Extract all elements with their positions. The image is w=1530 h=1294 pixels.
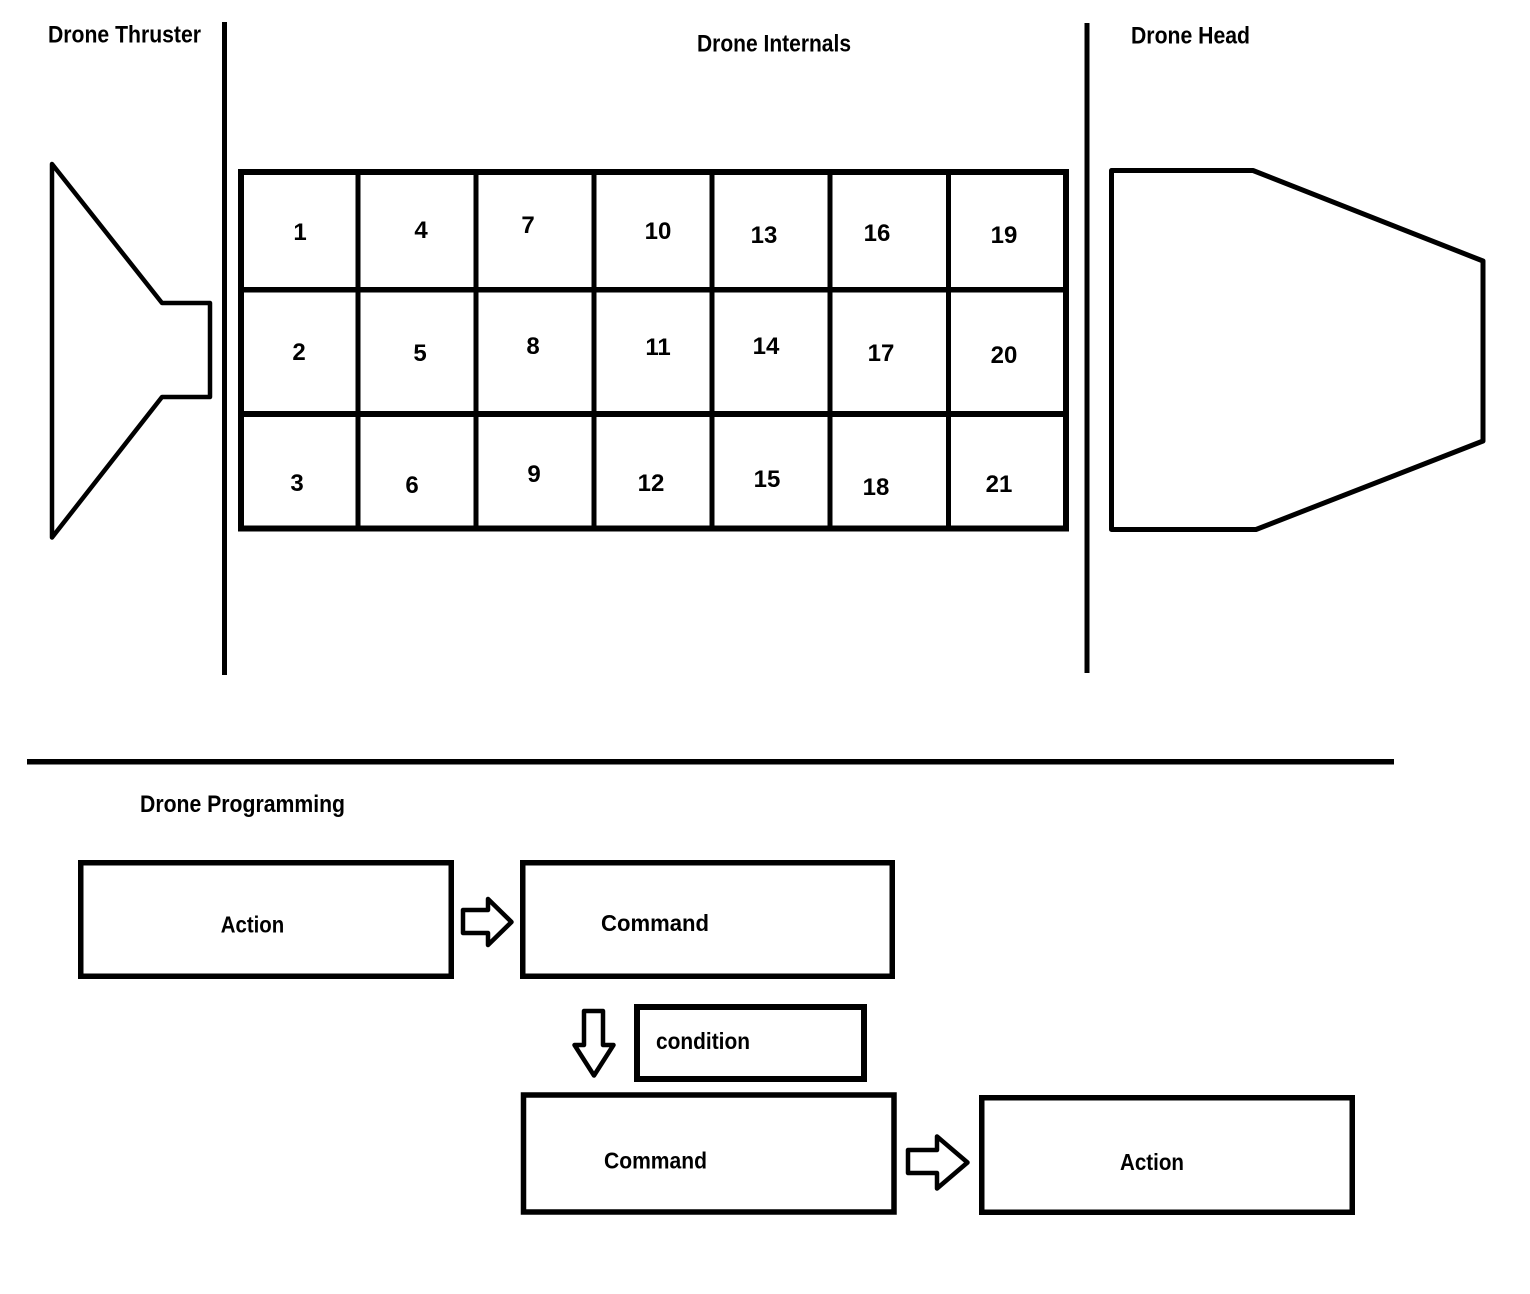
svg-text:13: 13 — [751, 222, 778, 249]
svg-text:Drone Head: Drone Head — [1131, 22, 1250, 49]
svg-text:19: 19 — [991, 222, 1018, 249]
svg-text:6: 6 — [405, 472, 418, 499]
svg-text:3: 3 — [290, 470, 303, 497]
svg-text:21: 21 — [986, 471, 1013, 498]
svg-text:Drone Programming: Drone Programming — [140, 791, 345, 818]
svg-text:10: 10 — [645, 218, 672, 245]
svg-text:20: 20 — [991, 342, 1018, 369]
svg-text:11: 11 — [645, 334, 670, 361]
svg-text:16: 16 — [864, 220, 891, 247]
svg-text:Command: Command — [601, 910, 709, 936]
svg-text:9: 9 — [527, 461, 540, 488]
svg-text:15: 15 — [754, 466, 781, 493]
svg-text:18: 18 — [863, 474, 890, 501]
svg-text:1: 1 — [293, 219, 306, 246]
svg-text:4: 4 — [414, 217, 428, 244]
svg-text:7: 7 — [521, 212, 534, 239]
svg-text:8: 8 — [526, 333, 539, 360]
svg-text:Command: Command — [604, 1148, 707, 1174]
svg-text:5: 5 — [413, 340, 426, 367]
svg-text:2: 2 — [292, 339, 305, 366]
svg-text:Action: Action — [221, 911, 285, 937]
svg-text:Action: Action — [1120, 1149, 1184, 1175]
svg-text:12: 12 — [638, 470, 665, 497]
svg-text:condition: condition — [656, 1028, 750, 1054]
svg-text:Drone Internals: Drone Internals — [697, 31, 851, 58]
svg-text:Drone Thruster: Drone Thruster — [48, 22, 201, 49]
svg-text:17: 17 — [868, 340, 895, 367]
svg-text:14: 14 — [753, 333, 780, 360]
